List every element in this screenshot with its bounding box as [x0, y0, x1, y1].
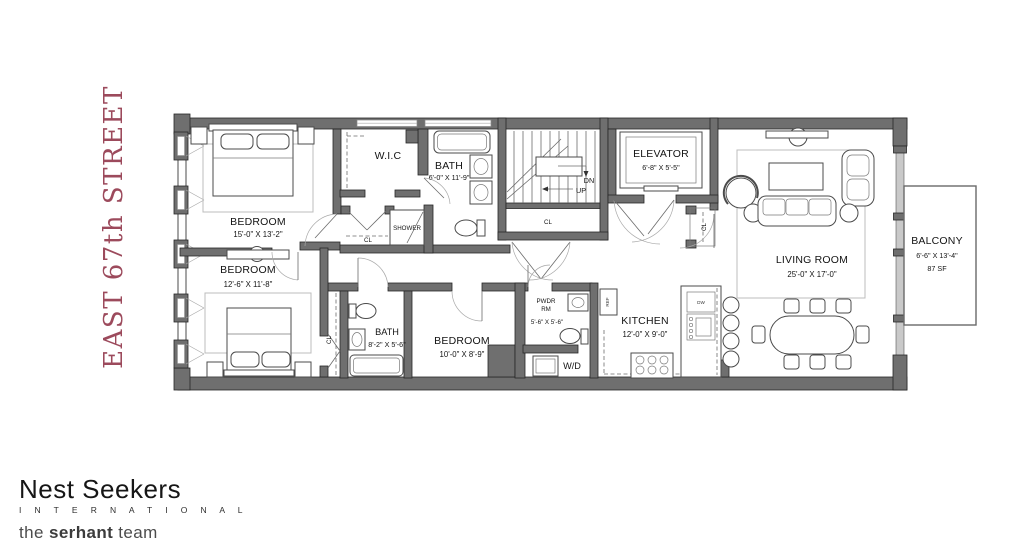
closet-label: CL: [326, 335, 333, 343]
living-room-dims: 25'-0" X 17'-0": [787, 270, 836, 279]
brand-block: Nest Seekers I N T E R N A T I O N A L t…: [19, 476, 248, 543]
door-arc: [529, 242, 570, 280]
sink-symbol: [349, 329, 365, 350]
balcony-dims: 6'-6" X 13'-4": [916, 251, 958, 260]
bathtub-symbol: [350, 355, 403, 376]
sink-symbol: [568, 294, 588, 311]
room-living: LIVING ROOM 25'-0" X 17'-0": [723, 128, 874, 369]
floorplan-page: EAST 67th STREET: [0, 0, 1024, 549]
room-bath-lower: BATH 8'-2" X 5'-6": [349, 258, 406, 376]
door-arc: [512, 242, 553, 280]
brand-team: the serhant team: [19, 523, 248, 543]
bedroom-second-dims: 12'-6" X 11'-8": [224, 280, 273, 289]
closet-label: CL: [364, 237, 372, 244]
door-arc: [452, 291, 482, 321]
door-arc: [358, 258, 388, 287]
elevator-dims: 6'-8" X 5'-5": [642, 163, 680, 172]
laundry-area: W/D: [533, 356, 581, 376]
bed-symbol: [207, 308, 311, 377]
living-room-label: LIVING ROOM: [776, 254, 848, 266]
kitchen-label: KITCHEN: [621, 315, 669, 327]
toilet-symbol: [560, 329, 588, 345]
loveseat-symbol: [842, 150, 874, 206]
stove-symbol: [631, 353, 673, 378]
elevator-label: ELEVATOR: [633, 148, 689, 160]
shower-stall: SHOWER: [390, 210, 424, 245]
coffee-table-symbol: [769, 163, 823, 190]
bedroom-third-dims: 10'-0" X 8'-9": [440, 350, 485, 359]
side-table-symbol: [840, 204, 858, 222]
sofa-symbol: [758, 196, 836, 226]
armchair-symbol: [724, 176, 758, 208]
shower-label: SHOWER: [393, 225, 421, 232]
stairs-up-label: UP: [576, 186, 586, 195]
counter-symbol: DW: [681, 286, 721, 377]
powder-label-2: RM: [541, 306, 551, 313]
room-bedroom-master: BEDROOM 15'-0" X 13'-2": [191, 124, 337, 262]
washer-dryer-symbol: [533, 356, 558, 376]
toilet-symbol: [349, 304, 376, 319]
sink-symbol: [470, 155, 492, 204]
closet-label: CL: [544, 219, 552, 226]
room-kitchen: REF DW KITCHEN 12'-0" X 9'-0": [600, 286, 721, 378]
dining-table-symbol: [752, 299, 869, 369]
washer-dryer-label: W/D: [563, 361, 581, 371]
bedroom-master-label: BEDROOM: [230, 216, 286, 228]
brand-name: Nest Seekers: [19, 476, 248, 502]
brand-subtitle: I N T E R N A T I O N A L: [19, 505, 248, 515]
hall-closet: CL: [346, 210, 388, 244]
bath-upper-label: BATH: [435, 160, 463, 172]
bedroom-second-label: BEDROOM: [220, 264, 276, 276]
stairs-down-label: DN: [584, 176, 594, 185]
wic-label: W.I.C: [375, 150, 402, 162]
kitchen-dims: 12'-0" X 9'-0": [623, 330, 668, 339]
door-arc: [680, 214, 714, 248]
bedroom-third-label: BEDROOM: [434, 335, 490, 347]
balcony-label: BALCONY: [911, 235, 963, 247]
powder-label-1: PWDR: [537, 298, 556, 305]
bathtub-symbol: [434, 131, 490, 153]
door-arc: [632, 200, 674, 242]
floor-plan: EAST 67th STREET: [0, 0, 1024, 549]
dishwasher-label: DW: [697, 300, 705, 305]
bar-stools: [723, 297, 739, 367]
room-wic: W.I.C: [347, 132, 402, 190]
powder-dims: 5'-6" X 5'-6": [531, 319, 563, 326]
toilet-symbol: [455, 220, 485, 236]
room-elevator: ELEVATOR 6'-8" X 5'-5" CL: [614, 132, 715, 248]
door-arc: [614, 200, 660, 244]
fridge-label: REF: [605, 297, 610, 306]
bath-lower-label: BATH: [375, 327, 399, 337]
bed-symbol: [191, 124, 314, 196]
room-bath-upper: BATH 6'-0" X 11'-9": [424, 131, 492, 236]
room-bedroom-third: BEDROOM 10'-0" X 8'-9": [434, 291, 490, 359]
street-label: EAST 67th STREET: [99, 85, 129, 369]
bedroom-master-dims: 15'-0" X 13'-2": [233, 230, 282, 239]
room-balcony: BALCONY 6'-6" X 13'-4" 87 SF: [904, 186, 976, 325]
closet-label: CL: [701, 222, 708, 230]
fridge-symbol: REF: [600, 289, 617, 315]
bath-lower-dims: 8'-2" X 5'-6": [368, 340, 406, 349]
balcony-area: 87 SF: [927, 264, 947, 273]
